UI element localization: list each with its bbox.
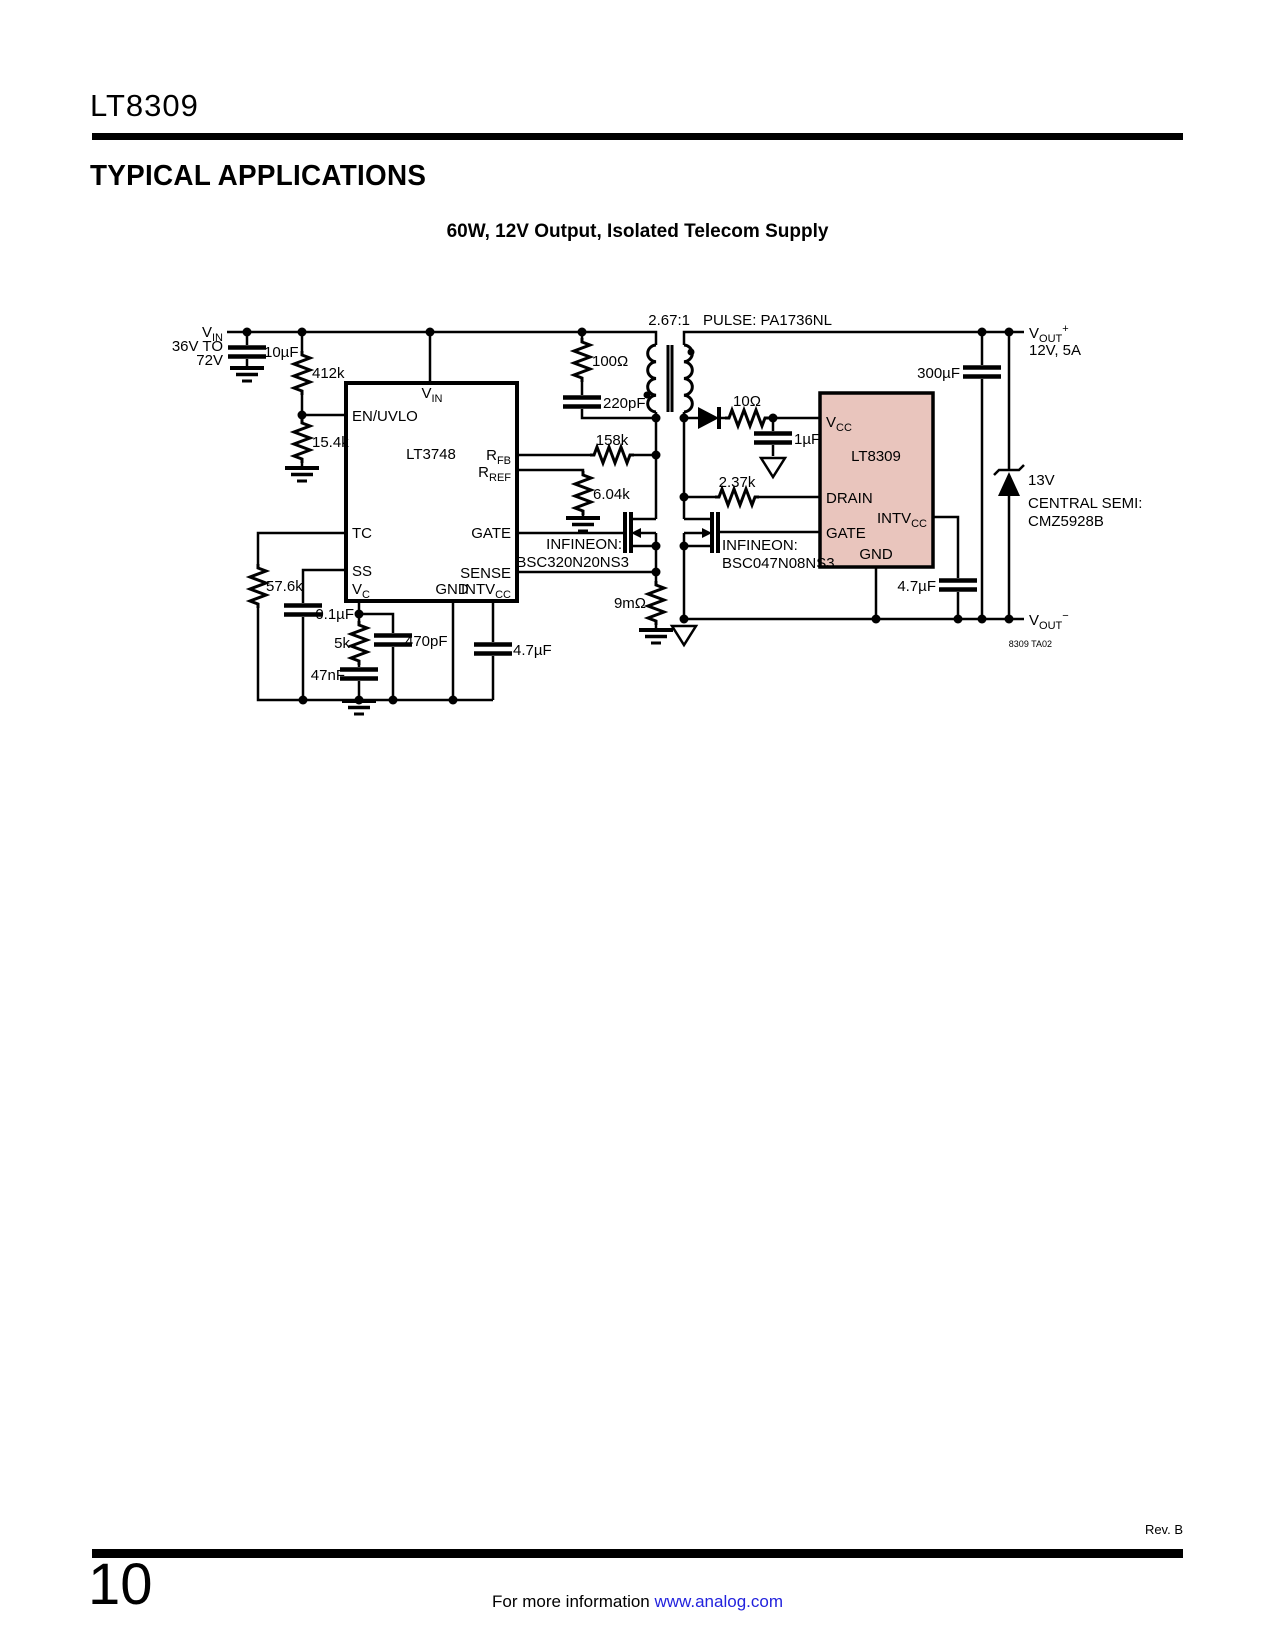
q1-manufacturer: INFINEON: — [546, 536, 622, 553]
u1-pin-gate: GATE — [471, 525, 511, 542]
label-300uf: 300µF — [917, 365, 960, 382]
label-2.37k: 2.37k — [719, 474, 756, 491]
u1-pin-ss: SS — [352, 563, 372, 580]
figure-id: 8309 TA02 — [1009, 639, 1052, 649]
footer-rule — [92, 1549, 1183, 1558]
label-57.6k: 57.6k — [266, 578, 303, 595]
label-158k: 158k — [596, 432, 629, 449]
label-0.1uf: 0.1µF — [315, 606, 354, 623]
snubber — [563, 338, 601, 407]
vcc-resistor — [725, 410, 769, 426]
label-10ohm: 10Ω — [733, 393, 761, 410]
revision-label: Rev. B — [92, 1522, 1183, 1537]
application-schematic: VIN 36V TO 72V 10µF 412k 15.4k VIN EN/UV… — [0, 0, 1275, 1650]
zener-diode — [994, 465, 1024, 496]
label-470pf: 470pF — [405, 633, 448, 650]
label-turns-ratio: 2.67:1 — [648, 312, 690, 329]
q1-part-number: BSC320N20NS3 — [516, 554, 629, 571]
primary-mosfet — [625, 512, 656, 553]
u1-pin-sense: SENSE — [460, 565, 511, 582]
u2-pin-drain: DRAIN — [826, 490, 873, 507]
u1-pin-tc: TC — [352, 525, 372, 542]
label-15.4k: 15.4k — [312, 434, 349, 451]
label-9mohm: 9mΩ — [614, 595, 646, 612]
datasheet-page: LT8309 TYPICAL APPLICATIONS 60W, 12V Out… — [0, 0, 1275, 1650]
label-1uf: 1µF — [794, 431, 820, 448]
label-47nf: 47nF — [311, 667, 345, 684]
secondary-phase-dot — [688, 349, 695, 356]
vout-rating: 12V, 5A — [1029, 342, 1081, 359]
label-100ohm: 100Ω — [592, 353, 628, 370]
drain-resistor — [715, 489, 759, 505]
rfb-resistor — [590, 447, 634, 463]
label-4.7uf-secondary: 4.7µF — [897, 578, 936, 595]
label-6.04k: 6.04k — [593, 486, 630, 503]
label-220pf: 220pF — [603, 395, 646, 412]
label-4.7uf-primary: 4.7µF — [513, 642, 552, 659]
secondary-ground — [672, 626, 696, 645]
zener-voltage: 13V — [1028, 472, 1055, 489]
u1-pin-enuvlo: EN/UVLO — [352, 408, 418, 425]
output-capacitor — [963, 368, 1001, 377]
q2-part-number: BSC047N08NS3 — [722, 555, 835, 572]
intvcc2-capacitor — [939, 581, 977, 590]
sense-resistor — [639, 581, 673, 643]
u2-pin-gate: GATE — [826, 525, 866, 542]
zener-manufacturer: CENTRAL SEMI: — [1028, 495, 1142, 512]
transformer — [644, 345, 695, 412]
u2-pin-gnd: GND — [859, 546, 893, 563]
vin-range-line2: 72V — [196, 352, 223, 369]
u1-part-name: LT3748 — [406, 446, 456, 463]
u2-part-name: LT8309 — [851, 448, 901, 465]
q2-manufacturer: INFINEON: — [722, 537, 798, 554]
tc-resistor — [250, 564, 266, 608]
vcc-diode — [698, 407, 719, 429]
footer-info: For more information www.analog.com — [0, 1592, 1275, 1612]
vout-minus-label: VOUT− — [1029, 610, 1069, 632]
sync-mosfet — [684, 512, 718, 553]
analog-website-link[interactable]: www.analog.com — [654, 1592, 783, 1611]
label-412k: 412k — [312, 365, 345, 382]
label-transformer-part: PULSE: PA1736NL — [703, 312, 832, 329]
label-5k: 5k — [334, 635, 350, 652]
vc-compensation — [340, 621, 412, 679]
zener-part-number: CMZ5928B — [1028, 513, 1104, 530]
label-input-cap: 10µF — [264, 344, 299, 361]
intvcc1-capacitor — [474, 645, 512, 654]
footer-info-text: For more information — [492, 1592, 655, 1611]
